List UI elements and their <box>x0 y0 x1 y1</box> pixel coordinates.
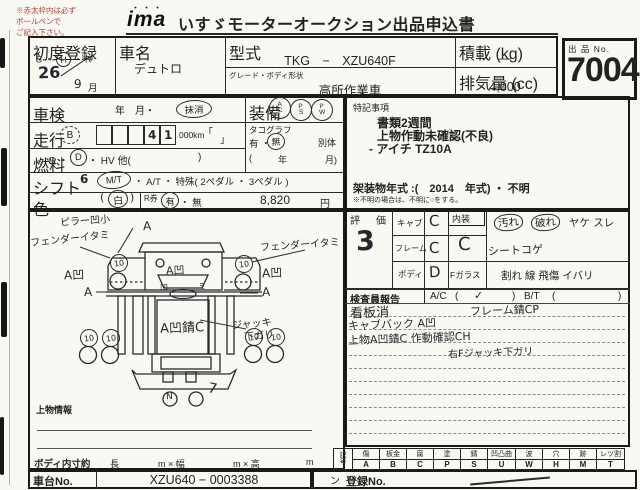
remarks-line3: - アイチ TZ10A <box>369 140 452 157</box>
remarks-body-year: 架装物年式 :( 2014 年式) ・ 不明 <box>353 180 530 196</box>
body-row-value: D <box>429 263 441 281</box>
auction-sheet: ※赤太枠内は必ず ボールペンで ご記入下さい。 ・・・ ima いすゞモーターオ… <box>0 0 640 490</box>
inspector-ac-check: ✓ <box>474 289 484 302</box>
legend-v-t: T <box>597 460 625 470</box>
r-ticket-label: R券 <box>144 193 158 204</box>
red-note-line1: ※赤太枠内は必ず <box>16 6 108 17</box>
fglass-label: Fガラス <box>450 269 481 281</box>
cab-row-value: C <box>429 212 440 230</box>
fuel-rest: ・ HV 他( <box>88 152 131 167</box>
interior-options: 汚れ 破れ ヤケ スレ <box>494 213 614 231</box>
inspection-text: 年 月・ <box>115 102 155 117</box>
dimension-length: 長 <box>110 457 119 470</box>
frame-row-value: C <box>429 239 440 257</box>
inspector-bt-open: ( <box>552 291 555 302</box>
legend-symbol-1: 記 <box>340 452 347 459</box>
scan-mark <box>0 38 5 68</box>
mileage-bracket-open: 「 <box>203 124 213 139</box>
model-value: TKG − XZU640F <box>225 50 455 69</box>
evaluation-label: 評 価 <box>350 212 389 227</box>
chassis-value: XZU640 − 0003388 <box>96 473 312 487</box>
legend-h-to: 塗 <box>434 449 461 460</box>
legend-h-fu: 腐 <box>407 449 434 460</box>
inspector-note-5: 右Fジャッキ下ガリ <box>448 343 534 361</box>
registration-label: 登録No. <box>346 473 386 489</box>
legend-h-ato: 跡 <box>570 449 597 460</box>
a-right-note: A <box>262 285 271 299</box>
legend-v-b: B <box>380 460 407 470</box>
legend-symbol-2: 号 <box>340 459 347 466</box>
dent-left-note: A凹 <box>64 266 85 284</box>
legend-h-ana: 穴 <box>543 449 570 460</box>
inspection-cancelled: 抹消 <box>176 100 212 118</box>
shift-hand-value: 6 <box>80 172 89 186</box>
equip-pw-bottom: W <box>319 110 326 117</box>
first-reg-month: 9 <box>74 77 82 91</box>
inspector-note-2: フレーム錆CP <box>470 301 540 319</box>
legend-h-retsuwari: レツ割 <box>597 449 625 460</box>
legend-h-kizu: 傷 <box>353 449 380 460</box>
legend-v-h: H <box>543 460 570 470</box>
cab-small-right-note: ミ <box>198 281 206 292</box>
cab-row-label: キャブ <box>397 217 423 229</box>
legend-v-u: U <box>488 460 516 470</box>
tachograph-paren-open: ( <box>249 153 252 163</box>
r-ticket-price: 8,820 <box>260 193 290 207</box>
dimension-m: m <box>306 457 314 467</box>
inspection-label: 車検 <box>33 102 65 126</box>
center-note: A凹錆C <box>160 316 205 337</box>
inspector-ac-label: A/C <box>430 291 447 302</box>
lot-number-value: 7004 <box>567 51 633 90</box>
legend-v-w: W <box>516 460 543 470</box>
body-row-label: ボディ <box>398 268 423 280</box>
interior-opt-tear: 破れ <box>531 213 561 232</box>
dimension-height: m × 高 <box>233 457 260 470</box>
red-instruction-note: ※赤太枠内は必ず ボールペンで ご記入下さい。 <box>16 6 108 39</box>
first-reg-year: 26 <box>38 63 61 83</box>
scan-mark <box>0 417 4 475</box>
interior-note: シートコゲ <box>488 241 544 259</box>
fglass-options: 割れ 線 飛傷 イバリ <box>501 268 594 283</box>
interior-label: 内装 <box>452 212 470 225</box>
legend-v-p: P <box>434 460 461 470</box>
a-left-note: A <box>84 285 93 299</box>
ima-logo: ima <box>127 8 166 32</box>
legend-v-c: C <box>407 460 434 470</box>
legend-h-bankin: 板金 <box>380 449 407 460</box>
remarks-label: 特記事項 <box>353 101 389 114</box>
fuel-close: ) <box>198 152 201 163</box>
displacement-value: 4,000 <box>455 80 555 94</box>
tachograph-separate: 別体 <box>318 136 336 149</box>
scan-edge-line <box>9 30 10 485</box>
color-paren-close: ) <box>130 191 135 204</box>
interior-opt-stain: 汚れ <box>493 213 523 232</box>
legend-h-sabi: 錆 <box>461 449 488 460</box>
inspector-ac-close: ) <box>512 291 515 302</box>
page-title: いすゞモーターオークション出品申込書 <box>178 11 475 35</box>
rear-n-mark: N <box>166 392 173 402</box>
frame-row-label: フレーム <box>395 243 427 254</box>
r-ticket-unit: 円 <box>320 195 330 210</box>
remarks-note: ※不明の場合は、不明に○をする。 <box>353 195 462 205</box>
equip-ac-bottom: C <box>278 108 283 115</box>
dimension-width: m × 幅 <box>158 457 185 470</box>
cab-small-left-note: 凹 <box>160 282 168 293</box>
interior-opt-others: ヤケ スレ <box>569 217 614 229</box>
r-ticket-no: ・ 無 <box>180 195 202 209</box>
mileage-grade: B <box>60 126 80 144</box>
evaluation-score: 3 <box>355 226 375 258</box>
car-name-value: デュトロ <box>134 60 182 77</box>
a-top-note: A <box>143 219 152 233</box>
inspector-bt-close: ) <box>618 291 621 302</box>
dimensions-label: ボディ内寸約 <box>34 456 90 470</box>
shift-rest: ・ A/T ・ 特殊( 2ペダル ・ 3ペダル ) <box>134 174 288 188</box>
cab-dent-note: A凹 <box>166 262 185 279</box>
tachograph-month: 月) <box>325 153 337 166</box>
payload-value: — <box>455 51 555 65</box>
color-paren-open: ( <box>100 191 105 204</box>
legend-h-nami: 波 <box>516 449 543 460</box>
mileage-unit: 000km <box>179 130 205 140</box>
remarks-box: 特記事項 書類2週間 上物作動未確認(不良) - アイチ TZ10A 架装物年式… <box>345 96 630 210</box>
damage-legend-table: 記号 傷 板金 腐 塗 錆 凹凸曲 波 穴 跡 レツ割 A B C P S U … <box>333 448 625 470</box>
title-underline <box>126 33 558 35</box>
first-reg-month-label: 月 <box>88 80 98 94</box>
legend-h-dekoboko: 凹凸曲 <box>488 449 516 460</box>
chassis-label: 車台No. <box>33 473 73 489</box>
tachograph-year: 年 <box>278 153 287 166</box>
fuel-g: G ・ <box>48 152 69 167</box>
legend-v-a: A <box>353 460 380 470</box>
equip-ps-bottom: S <box>299 110 304 117</box>
scan-mark <box>1 282 7 337</box>
red-note-line2: ボールペンで <box>16 17 108 28</box>
dent-right-note: A凹 <box>262 264 283 282</box>
mileage-digit-5: 1 <box>164 128 173 142</box>
scan-mark <box>1 148 7 206</box>
mileage-bracket-close: 」 <box>220 131 230 146</box>
inspector-ac-open: ( <box>455 291 458 302</box>
cargo-info-label: 上物情報 <box>36 403 72 416</box>
registration-tick: ン <box>330 472 341 487</box>
legend-v-m: M <box>570 460 597 470</box>
mileage-digit-4: 4 <box>148 128 157 142</box>
jack-note-line2: 下ガリ <box>243 326 274 344</box>
interior-value: C <box>458 234 471 255</box>
legend-v-s: S <box>461 460 488 470</box>
lot-number-box: 出 品 No. 7004 <box>562 38 637 100</box>
